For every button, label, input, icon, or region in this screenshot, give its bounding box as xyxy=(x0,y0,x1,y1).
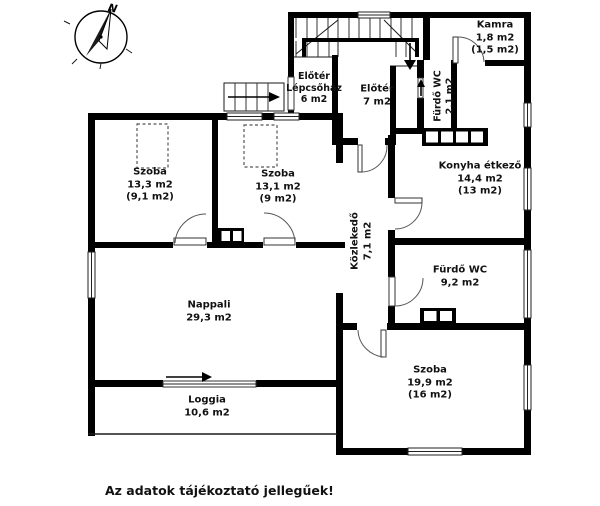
staircase xyxy=(294,18,423,70)
room-label-szoba-199: Szoba 19,9 m2 (16 m2) xyxy=(407,364,453,402)
eloter-door xyxy=(358,145,387,172)
window xyxy=(274,113,299,120)
window xyxy=(227,113,262,120)
window xyxy=(358,12,390,18)
window xyxy=(524,168,531,210)
room-label-eloter-lepcsohaz: Előtér Lépcsőház 6 m2 xyxy=(286,71,342,106)
room-label-eloter: Előtér 7 m2 xyxy=(360,84,394,109)
window xyxy=(408,448,462,455)
entrance-stair xyxy=(224,83,284,111)
disclaimer-text: Az adatok tájékoztató jellegűek! xyxy=(105,483,334,498)
bathroom-door xyxy=(389,277,423,306)
window xyxy=(524,103,531,127)
stove-icon xyxy=(137,124,168,168)
bedroom3-door xyxy=(358,330,386,357)
window xyxy=(524,365,531,410)
bedroom1-door xyxy=(174,214,206,245)
floor-plan: N Szoba 13,3 m2 (9,1 m2) Szoba 13,1 m2 (… xyxy=(0,0,600,506)
room-label-konyha: Konyha étkező 14,4 m2 (13 m2) xyxy=(439,160,522,198)
sliding-door xyxy=(163,381,256,387)
room-label-loggia: Loggia 10,6 m2 xyxy=(184,395,230,420)
chimney-icon xyxy=(218,228,244,244)
room-label-szoba-131: Szoba 13,1 m2 (9 m2) xyxy=(255,168,301,206)
room-label-kozlekedo: Közlekedő 7,1 m2 xyxy=(350,212,375,270)
stove-symbols xyxy=(137,124,277,168)
bedroom2-door xyxy=(264,213,295,245)
konyha-door xyxy=(395,198,422,229)
window xyxy=(88,252,95,298)
compass-rose-icon xyxy=(64,9,132,69)
room-label-szoba-133: Szoba 13,3 m2 (9,1 m2) xyxy=(126,166,174,204)
window xyxy=(524,250,531,318)
entrance-arrow xyxy=(228,92,280,102)
room-label-furdo-wc-kis: Fürdő WC 2,1 m2 xyxy=(433,70,456,122)
room-label-kamra: Kamra 1,8 m2 (1,5 m2) xyxy=(471,19,519,57)
room-label-furdo-wc: Fürdő WC 9,2 m2 xyxy=(433,265,487,290)
stove-icon xyxy=(244,125,277,167)
room-label-nappali: Nappali 29,3 m2 xyxy=(186,300,232,325)
chimney-icon xyxy=(422,128,488,146)
chimney-icon xyxy=(420,308,456,324)
